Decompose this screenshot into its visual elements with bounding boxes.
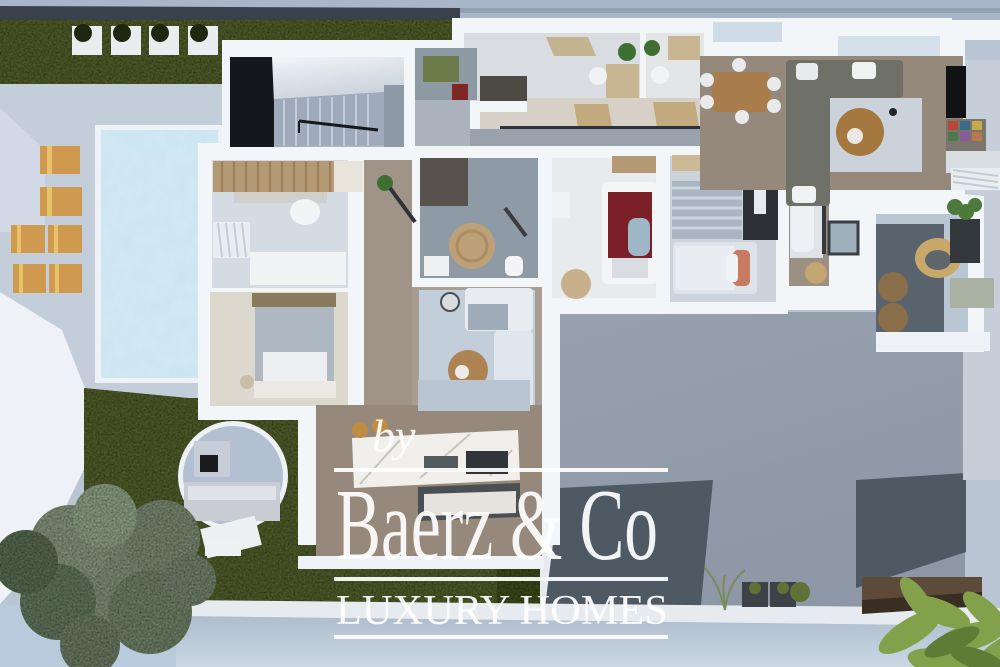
svg-text:LUXURY HOMES: LUXURY HOMES — [336, 588, 668, 634]
svg-text:by: by — [372, 410, 416, 461]
svg-text:Baerz & Co: Baerz & Co — [336, 469, 658, 582]
